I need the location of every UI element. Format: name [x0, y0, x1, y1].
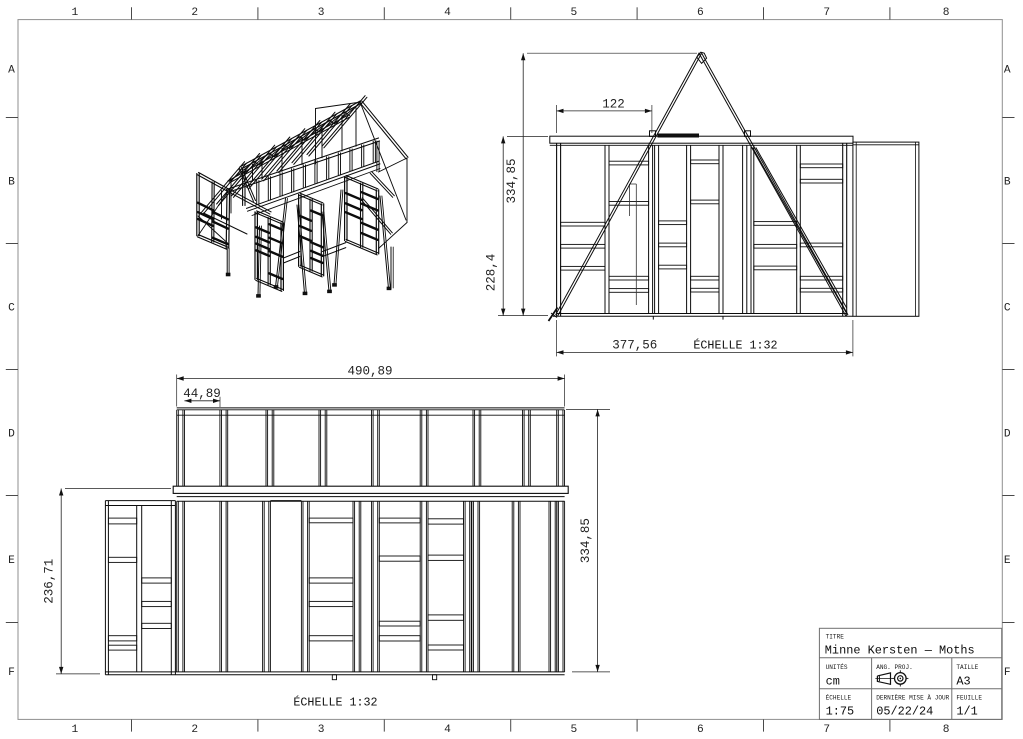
svg-text:B: B	[8, 177, 15, 189]
svg-text:ÉCHELLE 1:32: ÉCHELLE 1:32	[693, 339, 777, 353]
svg-text:C: C	[1004, 303, 1011, 315]
svg-text:6: 6	[697, 724, 704, 736]
svg-text:2: 2	[191, 724, 198, 736]
svg-text:DERNIÈRE MISE À JOUR: DERNIÈRE MISE À JOUR	[876, 695, 949, 702]
svg-text:334,85: 334,85	[505, 158, 519, 203]
svg-text:8: 8	[943, 7, 950, 19]
svg-text:TITRE: TITRE	[826, 634, 845, 641]
svg-text:B: B	[1004, 177, 1011, 189]
svg-text:2: 2	[191, 7, 198, 19]
svg-text:ANG. PROJ.: ANG. PROJ.	[876, 664, 913, 671]
svg-text:334,85: 334,85	[579, 518, 593, 563]
svg-text:cm: cm	[826, 674, 840, 688]
svg-text:Minne Kersten — Moths: Minne Kersten — Moths	[825, 644, 975, 658]
svg-text:D: D	[8, 429, 15, 441]
svg-text:3: 3	[318, 724, 325, 736]
svg-text:5: 5	[571, 724, 578, 736]
svg-text:D: D	[1004, 429, 1011, 441]
svg-text:E: E	[8, 555, 15, 567]
svg-text:ÉCHELLE: ÉCHELLE	[826, 695, 852, 702]
svg-text:44,89: 44,89	[183, 387, 221, 401]
svg-text:8: 8	[943, 724, 950, 736]
svg-text:A: A	[8, 65, 15, 77]
svg-text:TAILLE: TAILLE	[956, 664, 978, 671]
svg-text:490,89: 490,89	[347, 365, 392, 379]
svg-text:F: F	[8, 667, 15, 679]
svg-text:A: A	[1004, 65, 1011, 77]
svg-text:C: C	[8, 303, 15, 315]
svg-text:05/22/24: 05/22/24	[876, 704, 933, 718]
svg-text:FEUILLE: FEUILLE	[956, 695, 982, 702]
svg-text:228,4: 228,4	[485, 254, 499, 292]
svg-text:F: F	[1004, 667, 1011, 679]
svg-text:4: 4	[444, 724, 451, 736]
svg-text:5: 5	[571, 7, 578, 19]
svg-text:1: 1	[71, 7, 78, 19]
svg-text:ÉCHELLE 1:32: ÉCHELLE 1:32	[293, 696, 377, 710]
svg-text:6: 6	[697, 7, 704, 19]
svg-text:236,71: 236,71	[43, 559, 57, 604]
svg-text:1/1: 1/1	[956, 704, 977, 718]
svg-text:E: E	[1004, 555, 1011, 567]
svg-text:A3: A3	[956, 674, 970, 688]
svg-text:1:75: 1:75	[826, 704, 855, 718]
svg-text:7: 7	[823, 724, 830, 736]
svg-text:7: 7	[823, 7, 830, 19]
svg-text:1: 1	[71, 724, 78, 736]
svg-text:UNITÉS: UNITÉS	[826, 664, 848, 671]
svg-text:3: 3	[318, 7, 325, 19]
svg-text:122: 122	[602, 98, 625, 112]
svg-text:377,56: 377,56	[612, 339, 657, 353]
svg-text:4: 4	[444, 7, 451, 19]
